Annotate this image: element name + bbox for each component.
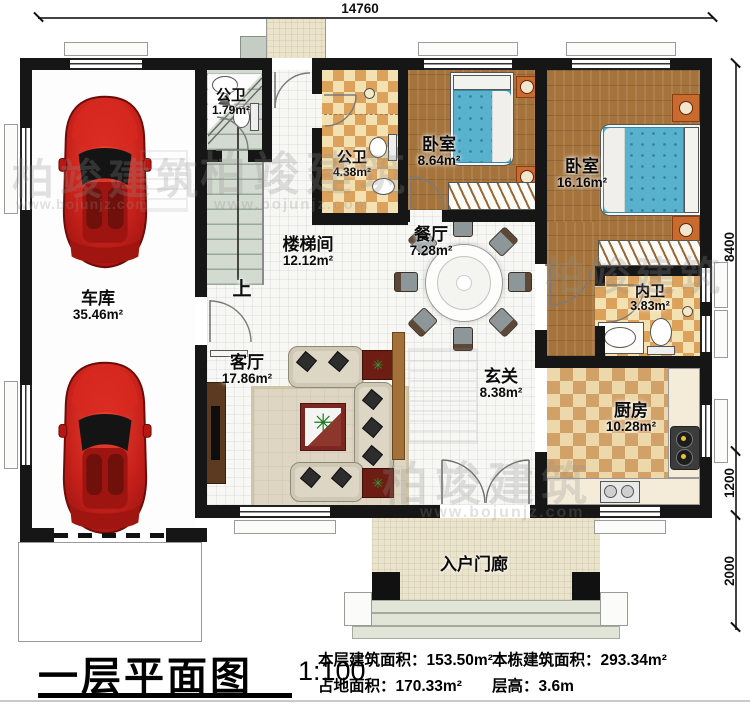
potted-plant: ✳ bbox=[311, 412, 335, 436]
chimney-gray bbox=[240, 36, 268, 60]
garage-door-dashed bbox=[54, 533, 166, 538]
window-bedroom-master bbox=[572, 58, 670, 70]
wall-bedroom-left-bottom bbox=[442, 210, 538, 222]
window-sill bbox=[4, 124, 18, 214]
driveway-apron bbox=[18, 542, 202, 642]
dining-table-center bbox=[456, 275, 472, 291]
wardrobe bbox=[598, 240, 702, 266]
porch-step bbox=[352, 600, 620, 613]
wall-bath-small-right bbox=[262, 58, 272, 162]
stat-value: 3.6m bbox=[539, 678, 574, 695]
porch-column-base bbox=[344, 592, 372, 626]
wall-suite-kitchen bbox=[535, 356, 712, 368]
wall-ensuite-left bbox=[595, 276, 605, 286]
dim-line-top bbox=[38, 17, 714, 19]
porch-column-base bbox=[600, 592, 628, 626]
kitchen-sink-basin bbox=[604, 485, 617, 498]
door-arc-bedroom-left bbox=[410, 176, 445, 211]
window-bedroom-left bbox=[424, 58, 512, 70]
door-arc-master-suite bbox=[549, 262, 594, 307]
window-sill bbox=[714, 310, 728, 358]
burner-flame bbox=[681, 454, 686, 459]
side-table-plant: ✳ bbox=[362, 468, 394, 498]
wall-ensuite-left bbox=[595, 326, 605, 356]
toilet-bowl bbox=[650, 318, 672, 346]
wall-garage-bottom bbox=[166, 528, 207, 542]
entrance-opening bbox=[440, 505, 530, 518]
watermark-logo bbox=[140, 150, 188, 212]
window-sill bbox=[234, 520, 336, 534]
wall-corridor-right bbox=[312, 128, 322, 225]
wardrobe bbox=[448, 182, 538, 210]
dining-chair bbox=[394, 272, 418, 292]
back-door-opening bbox=[272, 58, 312, 70]
wall-bath-small-bottom bbox=[248, 150, 272, 162]
room-label-bath-public: 公卫4.38m² bbox=[322, 150, 382, 179]
door-arc-back-entry bbox=[274, 72, 312, 110]
floorplan-canvas: ✳ ✳ ✳ bbox=[0, 0, 750, 703]
kitchen-sink-basin bbox=[621, 485, 634, 498]
wall-bottom bbox=[660, 505, 712, 518]
room-label-porch: 入户门廊 bbox=[414, 556, 534, 574]
wall-bath-public-bottom bbox=[312, 213, 408, 225]
sink bbox=[372, 178, 395, 195]
floor-drain bbox=[364, 88, 375, 99]
sofa-two-seat bbox=[288, 346, 364, 388]
stat-value: 153.50m² bbox=[427, 652, 493, 669]
door-arc-garage bbox=[209, 300, 252, 344]
window-sill bbox=[566, 42, 676, 56]
toilet-tank bbox=[388, 134, 397, 161]
wall-bottom bbox=[330, 505, 440, 518]
porch-column bbox=[572, 572, 600, 600]
bed-pillow bbox=[684, 127, 699, 213]
page-bottom-edge bbox=[0, 700, 750, 702]
room-label-stairwell: 楼梯间12.12m² bbox=[258, 236, 358, 269]
window-sill bbox=[418, 42, 518, 56]
bed-pillow bbox=[453, 75, 511, 90]
sink bbox=[604, 327, 636, 348]
room-label-bedroom-master: 卧室16.16m² bbox=[538, 158, 626, 191]
stat-label: 本层建筑面积： bbox=[318, 652, 427, 669]
entrance-door-left bbox=[441, 459, 486, 505]
wall-corridor-right bbox=[312, 58, 322, 94]
toilet-tank bbox=[647, 346, 675, 355]
nightstand bbox=[672, 94, 700, 122]
porch-column bbox=[372, 572, 400, 600]
room-label-kitchen: 厨房10.28m² bbox=[586, 402, 676, 435]
room-label-bedroom-left: 卧室8.64m² bbox=[404, 136, 474, 169]
stat-height: 层高：3.6m bbox=[492, 674, 574, 696]
window-sill bbox=[714, 262, 728, 308]
dim-label-8400: 8400 bbox=[722, 232, 737, 262]
dim-line-right bbox=[735, 64, 737, 630]
wall-garage-bottom bbox=[20, 528, 54, 542]
porch-step bbox=[352, 626, 620, 639]
room-label-garage: 车库35.46m² bbox=[56, 290, 140, 323]
dim-label-1200: 1200 bbox=[722, 468, 737, 498]
stair-up-label: 上 bbox=[228, 280, 256, 301]
window-sill bbox=[594, 520, 666, 534]
window-kitchen-east bbox=[700, 405, 712, 457]
watermark-logo bbox=[408, 348, 478, 444]
wall-ensuite-top bbox=[595, 266, 712, 276]
burner-flame bbox=[681, 436, 686, 441]
window-east bbox=[700, 316, 712, 352]
porch-step bbox=[352, 613, 620, 626]
window-sill bbox=[714, 399, 728, 463]
wall-bath-small-bottom bbox=[195, 150, 222, 162]
title-underline bbox=[38, 693, 292, 698]
stat-total-area: 本栋建筑面积：293.34m² bbox=[492, 648, 667, 670]
partition-screen bbox=[392, 332, 405, 460]
tv bbox=[211, 406, 220, 460]
window-garage-west bbox=[20, 128, 32, 210]
sofa-small bbox=[290, 462, 364, 502]
window-sill bbox=[64, 42, 148, 56]
chimney-grid bbox=[266, 18, 326, 60]
window-kitchen-south bbox=[600, 505, 660, 518]
dim-label-2000: 2000 bbox=[722, 556, 737, 586]
stat-value: 293.34m² bbox=[601, 652, 667, 669]
window-sill bbox=[4, 381, 18, 469]
stat-label: 本栋建筑面积： bbox=[492, 652, 601, 669]
room-label-living: 客厅17.86m² bbox=[204, 354, 290, 387]
stat-value: 170.33m² bbox=[396, 678, 462, 695]
door-arc-bath-small bbox=[216, 116, 249, 151]
wall-bedroom-divider bbox=[535, 58, 547, 222]
room-label-bath-small: 公卫1.79m² bbox=[200, 88, 262, 117]
window-living-south bbox=[240, 505, 330, 518]
dim-label-top: 14760 bbox=[320, 1, 400, 16]
room-label-ensuite: 内卫3.83m² bbox=[612, 284, 688, 314]
bed-sheet-fold bbox=[492, 91, 511, 162]
room-label-dining: 餐厅7.28m² bbox=[394, 226, 468, 259]
dining-chair bbox=[508, 272, 532, 292]
wall-bottom bbox=[195, 505, 240, 518]
stat-floor-area: 本层建筑面积：153.50m² bbox=[318, 648, 493, 670]
window-garage-top bbox=[70, 58, 142, 70]
car bbox=[56, 358, 154, 538]
wall-kitchen-left bbox=[535, 452, 547, 518]
door-arc-bath-public bbox=[324, 94, 357, 127]
stat-label: 层高： bbox=[492, 678, 539, 695]
wall-suite-left bbox=[535, 222, 547, 264]
side-table-plant: ✳ bbox=[362, 350, 394, 380]
stat-land-area: 占地面积：170.33m² bbox=[318, 674, 462, 696]
entrance-door-right bbox=[486, 459, 531, 505]
window-east bbox=[700, 268, 712, 302]
window-garage-west bbox=[20, 385, 32, 465]
wall-bedroom-left-bottom bbox=[398, 210, 410, 222]
stat-label: 占地面积： bbox=[318, 678, 396, 695]
